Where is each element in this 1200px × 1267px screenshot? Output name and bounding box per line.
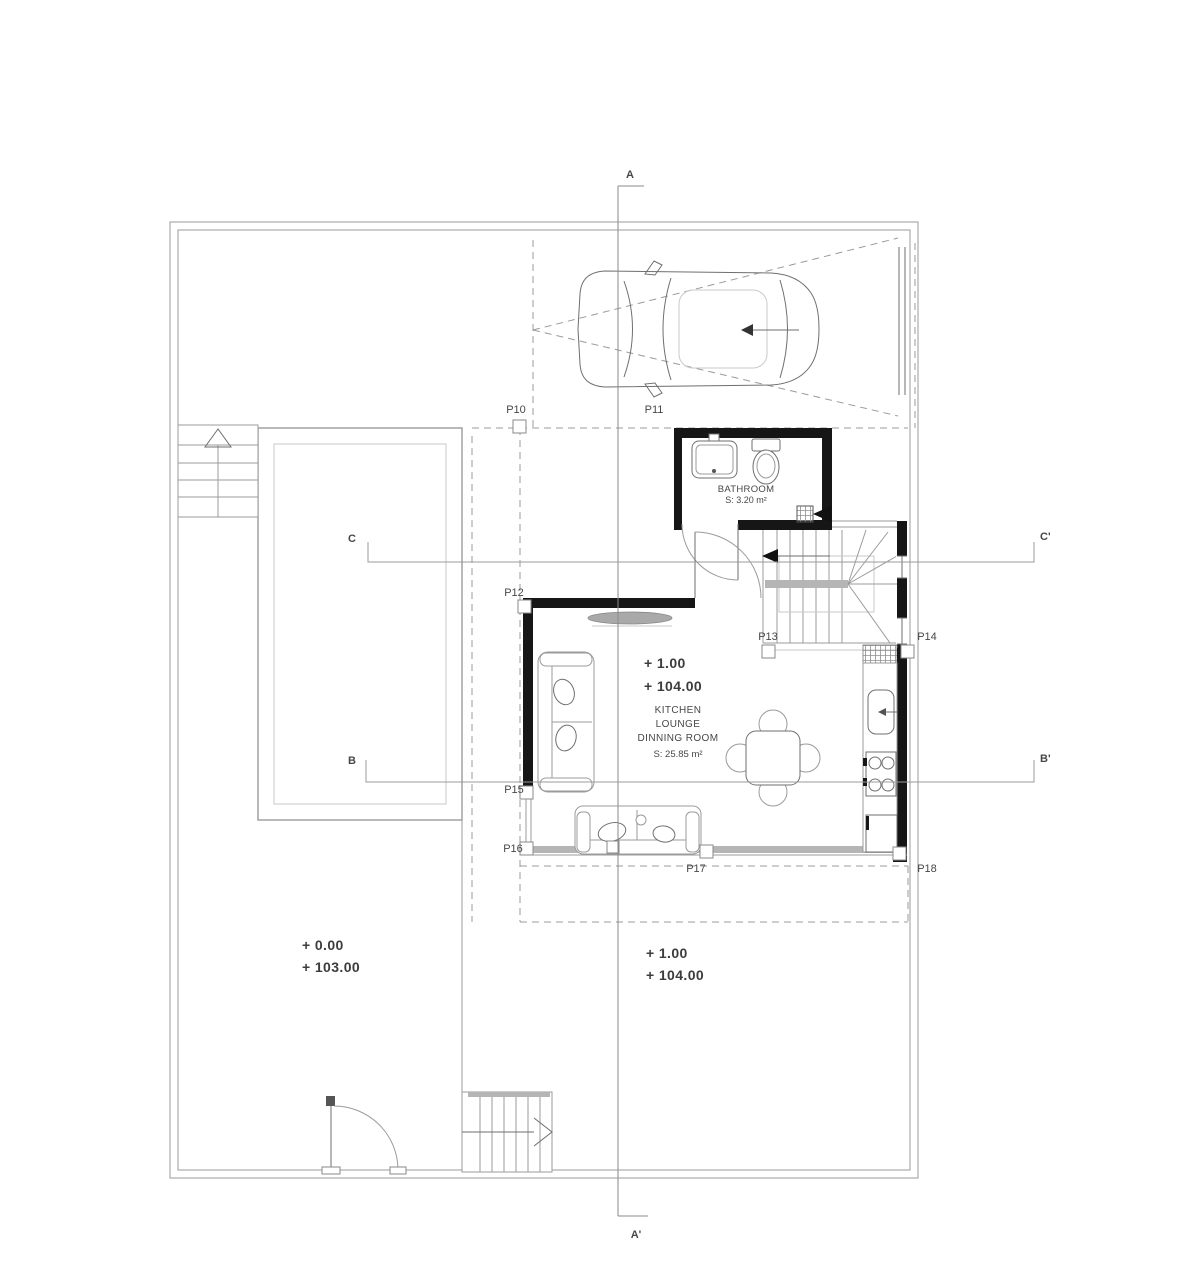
building-floor — [523, 428, 907, 862]
car-windshield — [663, 278, 671, 380]
plot-level-absolute: + 103.00 — [302, 959, 360, 975]
label-p11: P11 — [645, 404, 664, 416]
label-p14: P14 — [917, 631, 937, 643]
parking-sight-lines — [533, 238, 898, 416]
marker-p13 — [762, 645, 775, 658]
terrace-level-absolute: + 104.00 — [646, 967, 704, 983]
kitchen-label-2: LOUNGE — [656, 719, 701, 730]
label-p10: P10 — [506, 404, 526, 416]
cushion — [636, 815, 646, 825]
car — [578, 261, 819, 397]
bathroom-label: BATHROOM — [718, 484, 775, 495]
section-label-b: B — [348, 755, 356, 767]
car-roof — [679, 290, 767, 368]
window — [896, 556, 908, 578]
car-mirror-left — [645, 261, 662, 275]
car-direction-arrow-icon — [741, 324, 753, 336]
interior-level-relative: + 1.00 — [644, 655, 686, 671]
plot-level-relative: + 0.00 — [302, 937, 344, 953]
sofa-large — [538, 652, 594, 792]
floor-plan-drawing: BATHROOM S: 3.20 m² — [0, 0, 1200, 1267]
cooktop — [863, 752, 896, 796]
interior-level-absolute: + 104.00 — [644, 678, 702, 694]
label-p12: P12 — [504, 587, 524, 599]
section-label-b-prime: B' — [1040, 753, 1051, 765]
toilet — [752, 439, 780, 484]
label-p17: P17 — [686, 863, 706, 875]
car-mirror-right — [645, 383, 662, 397]
marker-p12 — [518, 600, 531, 613]
kitchen-area-label: S: 25.85 m² — [653, 749, 702, 760]
marker-p17 — [700, 845, 713, 858]
exterior-stairs-lower — [462, 1092, 552, 1172]
bathroom-sink — [692, 434, 737, 478]
dining-table — [746, 731, 800, 785]
exterior-stairs-upper — [178, 425, 258, 517]
marker-p18 — [893, 847, 906, 860]
base-cabinet — [866, 815, 897, 852]
section-label-c: C — [348, 533, 356, 545]
label-p15: P15 — [504, 784, 524, 796]
sofa-small — [575, 806, 701, 854]
floor-plan-page: BATHROOM S: 3.20 m² — [0, 0, 1200, 1267]
label-p16: P16 — [503, 843, 523, 855]
east-wall-upper — [896, 521, 908, 648]
window — [896, 618, 908, 644]
section-label-a: A — [626, 169, 634, 181]
kitchen-label-1: KITCHEN — [655, 705, 702, 716]
car-rear-window — [624, 281, 633, 377]
section-label-c-prime: C' — [1040, 531, 1051, 543]
label-p13: P13 — [758, 631, 778, 643]
garage-door — [899, 247, 905, 395]
marker-p14 — [901, 645, 914, 658]
kitchen-counter — [863, 663, 897, 852]
kitchen-label-3: DINNING ROOM — [638, 733, 719, 744]
duct-shaft — [797, 506, 813, 522]
marker — [607, 841, 619, 853]
terrace-level-relative: + 1.00 — [646, 945, 688, 961]
car-hood-line — [780, 280, 788, 378]
entrance-gate — [322, 1096, 406, 1174]
pool — [258, 428, 462, 820]
bathroom-area-label: S: 3.20 m² — [725, 495, 767, 505]
appliance-hatched — [863, 645, 897, 663]
marker-p10 — [513, 420, 526, 433]
kitchen-sink — [868, 690, 897, 734]
section-label-a-prime: A' — [631, 1229, 642, 1241]
label-p18: P18 — [917, 863, 937, 875]
